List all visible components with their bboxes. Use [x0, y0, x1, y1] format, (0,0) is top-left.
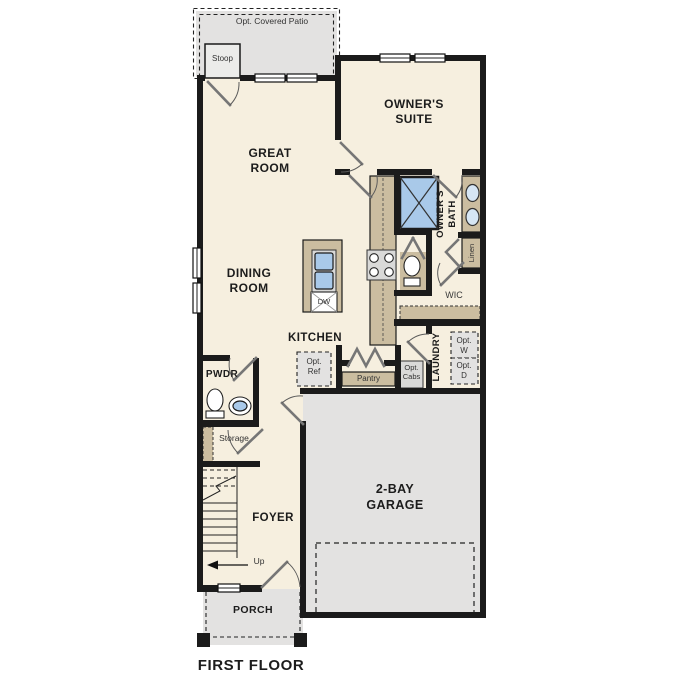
vanity: [462, 176, 483, 232]
label-pantry: Pantry: [342, 374, 395, 384]
label-kitchen: KITCHEN: [279, 331, 351, 345]
label-wic: WIC: [434, 290, 474, 301]
label-garage: 2-BAY GARAGE: [349, 482, 441, 513]
label-opt-w: Opt. W: [453, 336, 475, 356]
label-stoop: Stoop: [205, 54, 240, 64]
label-opt-d: Opt. D: [453, 361, 475, 381]
label-laundry: LAUNDRY: [431, 327, 443, 387]
label-dw: DW: [313, 297, 335, 306]
label-up: Up: [247, 556, 271, 567]
label-owners-bath: OWNER'S BATH: [435, 178, 461, 250]
label-linen: Linen: [467, 236, 477, 270]
label-pwdr: PWDR: [200, 369, 244, 382]
label-great-room: GREAT ROOM: [235, 146, 305, 176]
label-opt-cabs: Opt. Cabs: [398, 363, 425, 382]
label-owners-suite: OWNER'S SUITE: [374, 97, 454, 127]
label-storage: Storage: [209, 433, 259, 444]
wic-shelf: [400, 306, 480, 320]
label-dining-room: DINING ROOM: [214, 266, 284, 296]
floor-plan: Opt. Covered Patio Stoop OWNER'S SUITE G…: [0, 0, 687, 687]
kitchen-counter: [367, 176, 396, 345]
label-porch: PORCH: [218, 604, 288, 617]
label-opt-ref: Opt. Ref: [302, 357, 326, 377]
shower: [400, 177, 438, 229]
water-closet-toilet: [400, 252, 426, 290]
label-first-floor: FIRST FLOOR: [195, 657, 307, 676]
label-foyer: FOYER: [243, 511, 303, 525]
label-opt-covered-patio: Opt. Covered Patio: [212, 16, 332, 27]
